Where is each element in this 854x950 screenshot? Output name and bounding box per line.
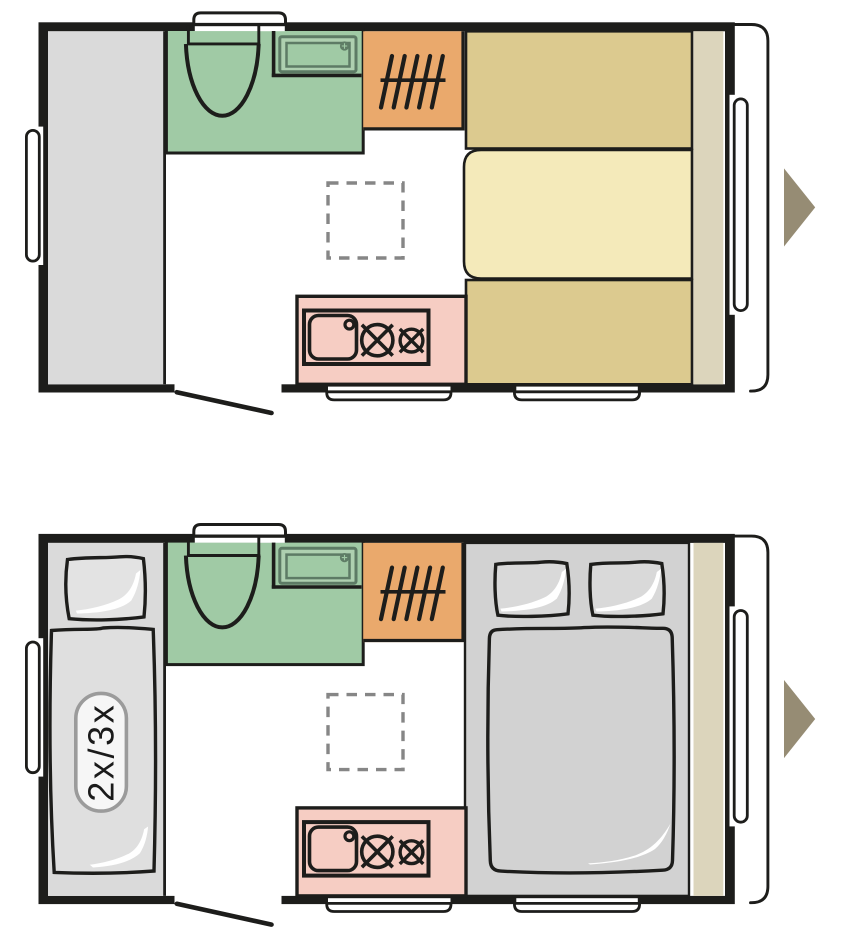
svg-text:2x/3x: 2x/3x — [81, 703, 122, 802]
